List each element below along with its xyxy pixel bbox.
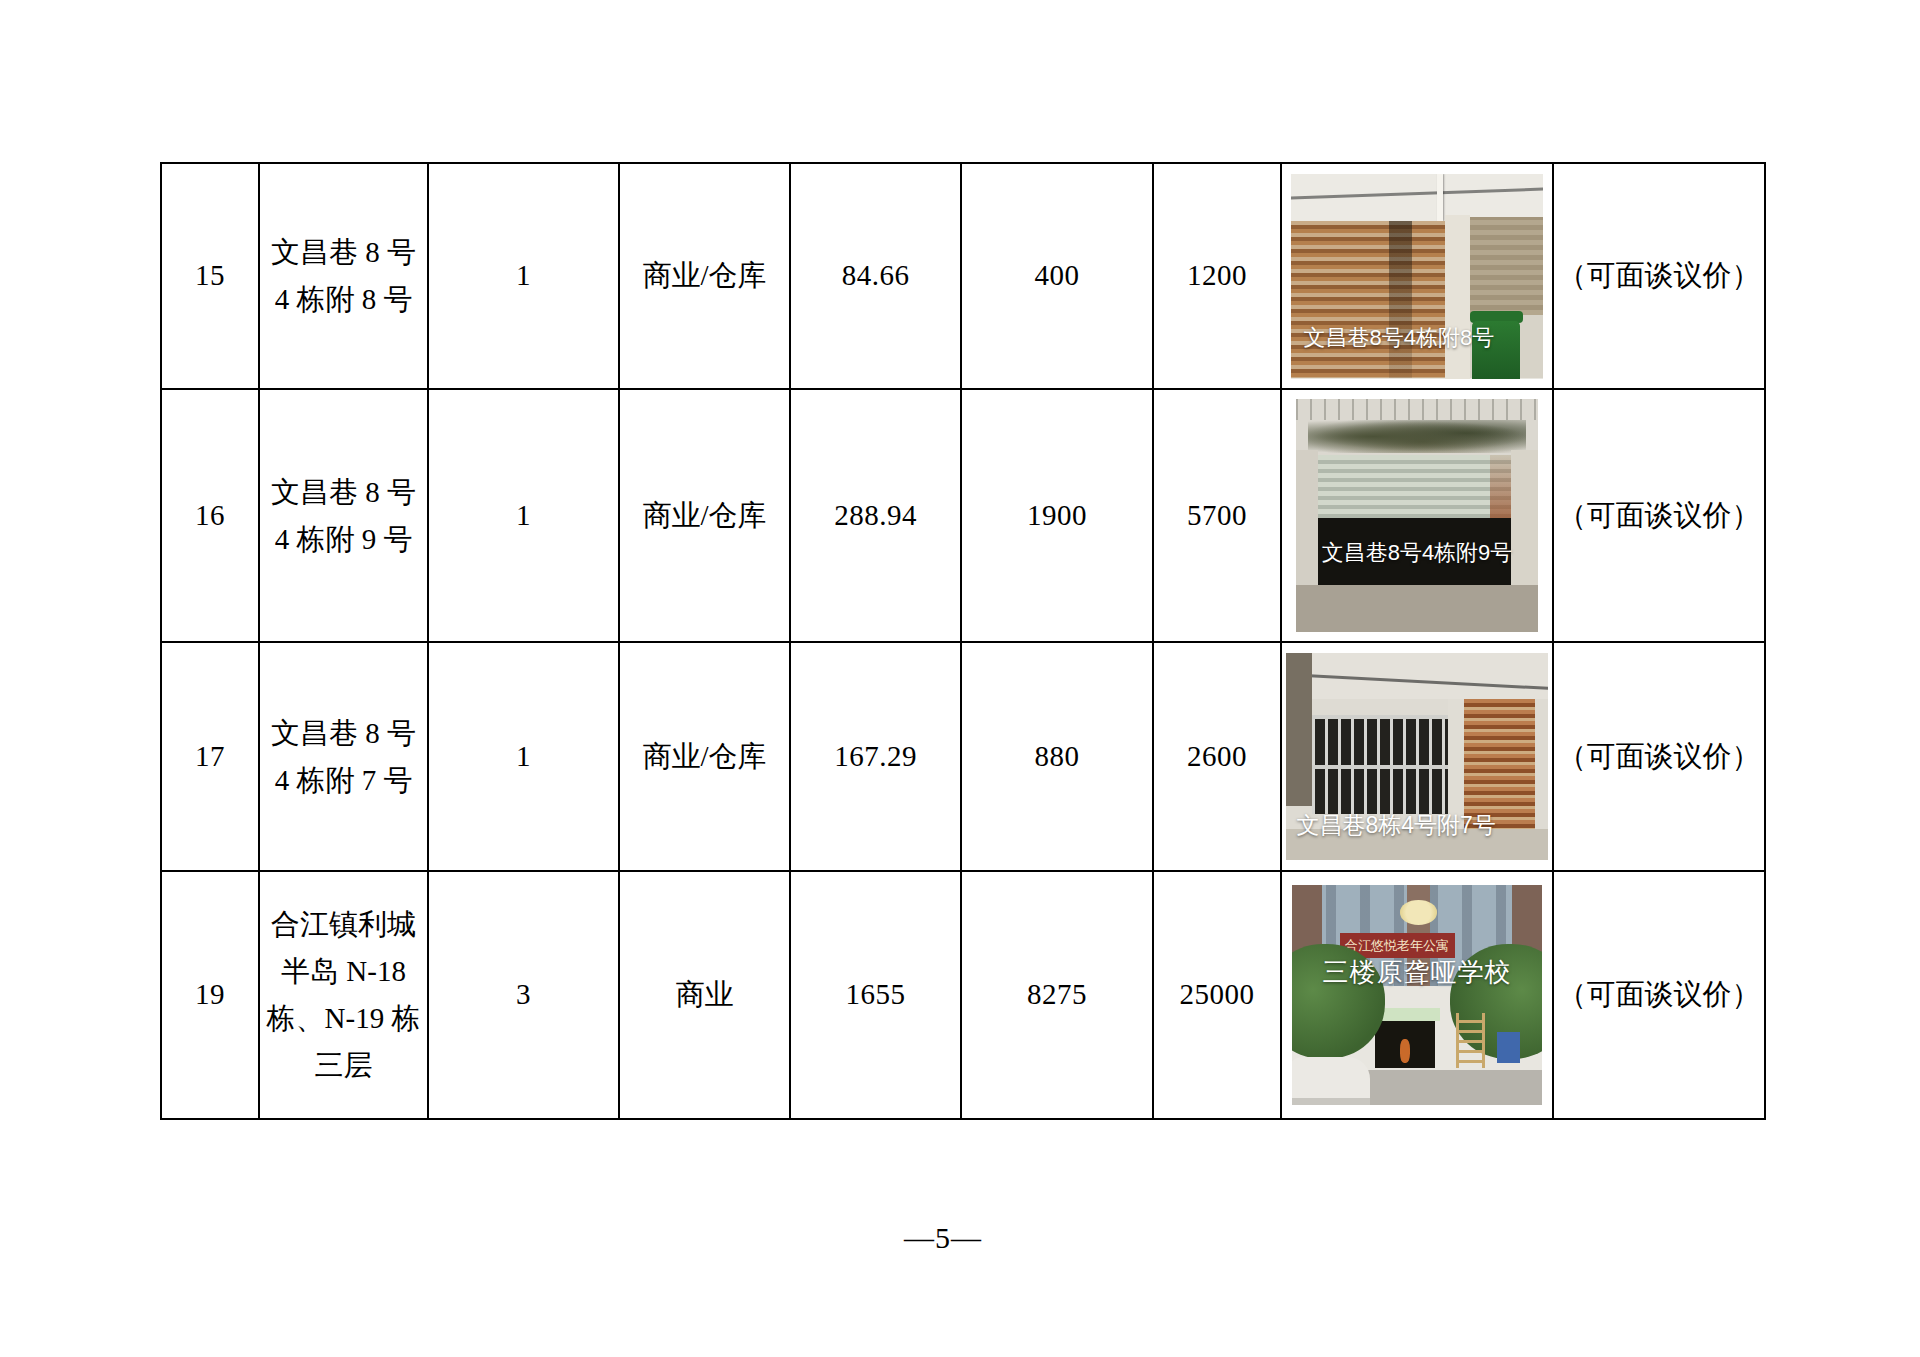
count-cell: 1 — [428, 642, 619, 871]
white-car — [1292, 1057, 1370, 1105]
price-a-cell: 1900 — [961, 389, 1153, 642]
price-b-value: 2600 — [1187, 740, 1247, 772]
area-value: 288.94 — [834, 499, 917, 531]
document-page: 15 文昌巷 8 号 4 栋附 8 号 1 商业/仓库 84.66 400 12… — [0, 0, 1920, 1357]
address-line: 4 栋附 7 号 — [275, 764, 413, 796]
row-number-cell: 19 — [161, 871, 259, 1119]
price-a-cell: 8275 — [961, 871, 1153, 1119]
address: 文昌巷 8 号 4 栋附 7 号 — [260, 710, 427, 804]
mesh-grate — [1296, 399, 1538, 420]
note-cell: （可面谈议价） — [1553, 389, 1765, 642]
concrete-panel — [1470, 217, 1543, 315]
note-text: （可面谈议价） — [1558, 259, 1761, 291]
address-cell: 文昌巷 8 号 4 栋附 9 号 — [259, 389, 428, 642]
address-line: 三层 — [315, 1049, 373, 1081]
row-number-cell: 17 — [161, 642, 259, 871]
address-cell: 文昌巷 8 号 4 栋附 7 号 — [259, 642, 428, 871]
type-cell: 商业 — [619, 871, 790, 1119]
table-row: 15 文昌巷 8 号 4 栋附 8 号 1 商业/仓库 84.66 400 12… — [161, 163, 1765, 389]
right-pillar — [1511, 450, 1538, 594]
pipe — [1437, 174, 1443, 221]
area-value: 167.29 — [834, 740, 917, 772]
photo-cell: 文昌巷8栋4号附7号 — [1281, 642, 1553, 871]
price-b-value: 25000 — [1180, 978, 1255, 1010]
photo-cell: 文昌巷8号4栋附9号 — [1281, 389, 1553, 642]
price-a-cell: 880 — [961, 642, 1153, 871]
type-cell: 商业/仓库 — [619, 163, 790, 389]
area-value: 84.66 — [842, 259, 910, 291]
price-b-cell: 25000 — [1153, 871, 1281, 1119]
note-text: （可面谈议价） — [1558, 499, 1761, 531]
address: 文昌巷 8 号 4 栋附 9 号 — [260, 469, 427, 563]
price-b-cell: 5700 — [1153, 389, 1281, 642]
area-cell: 84.66 — [790, 163, 961, 389]
price-b-cell: 1200 — [1153, 163, 1281, 389]
address-line: 4 栋附 8 号 — [275, 283, 413, 315]
round-sign — [1400, 900, 1438, 924]
property-photo: 合江悠悦老年公寓 三楼原聋哑学校 — [1292, 885, 1542, 1105]
photo-caption: 三楼原聋哑学校 — [1292, 953, 1542, 992]
address-cell: 文昌巷 8 号 4 栋附 8 号 — [259, 163, 428, 389]
blue-sign — [1497, 1032, 1520, 1063]
note-text: （可面谈议价） — [1558, 740, 1761, 772]
ladder — [1456, 1013, 1485, 1068]
property-photo: 文昌巷8栋4号附7号 — [1286, 653, 1548, 860]
table-row: 19 合江镇利城 半岛 N-18 栋、N-19 栋 三层 3 商业 1655 8… — [161, 871, 1765, 1119]
property-photo: 文昌巷8号4栋附9号 — [1296, 399, 1538, 632]
address-line: 合江镇利城 — [271, 908, 416, 940]
ground — [1296, 585, 1538, 632]
photo-cell: 合江悠悦老年公寓 三楼原聋哑学校 — [1281, 871, 1553, 1119]
price-a-value: 8275 — [1027, 978, 1087, 1010]
row-number: 17 — [195, 740, 225, 772]
address-line: 4 栋附 9 号 — [275, 523, 413, 555]
row-number: 16 — [195, 499, 225, 531]
address-line: 栋、N-19 栋 — [267, 1002, 421, 1034]
address: 合江镇利城 半岛 N-18 栋、N-19 栋 三层 — [260, 901, 427, 1089]
address-line: 文昌巷 8 号 — [271, 717, 416, 749]
table-row: 17 文昌巷 8 号 4 栋附 7 号 1 商业/仓库 167.29 880 2… — [161, 642, 1765, 871]
address-line: 文昌巷 8 号 — [271, 476, 416, 508]
page-number: —5— — [904, 1221, 982, 1255]
count-cell: 1 — [428, 163, 619, 389]
type-cell: 商业/仓库 — [619, 389, 790, 642]
note-cell: （可面谈议价） — [1553, 642, 1765, 871]
usage-type: 商业/仓库 — [642, 259, 766, 291]
type-cell: 商业/仓库 — [619, 642, 790, 871]
rusty-roller-shutter — [1291, 221, 1445, 379]
gate-rail — [1312, 765, 1448, 769]
shadowed-wall — [1286, 653, 1312, 806]
note-cell: （可面谈议价） — [1553, 163, 1765, 389]
usage-type: 商业/仓库 — [642, 499, 766, 531]
price-b-value: 5700 — [1187, 499, 1247, 531]
property-photo: 文昌巷8号4栋附8号 — [1291, 174, 1543, 379]
photo-cell: 文昌巷8号4栋附8号 — [1281, 163, 1553, 389]
count-cell: 3 — [428, 871, 619, 1119]
area-cell: 288.94 — [790, 389, 961, 642]
photo-caption: 文昌巷8栋4号附7号 — [1296, 808, 1495, 843]
moss — [1308, 420, 1526, 453]
person — [1400, 1039, 1410, 1063]
count-value: 1 — [516, 259, 531, 291]
price-a-cell: 400 — [961, 163, 1153, 389]
area-cell: 167.29 — [790, 642, 961, 871]
count-cell: 1 — [428, 389, 619, 642]
photo-caption: 文昌巷8号4栋附8号 — [1304, 321, 1495, 354]
address-cell: 合江镇利城 半岛 N-18 栋、N-19 栋 三层 — [259, 871, 428, 1119]
price-b-cell: 2600 — [1153, 642, 1281, 871]
price-a-value: 880 — [1035, 740, 1080, 772]
area-value: 1655 — [846, 978, 906, 1010]
usage-type: 商业/仓库 — [642, 740, 766, 772]
price-b-value: 1200 — [1187, 259, 1247, 291]
row-number: 15 — [195, 259, 225, 291]
note-cell: （可面谈议价） — [1553, 871, 1765, 1119]
price-a-value: 400 — [1035, 259, 1080, 291]
note-text: （可面谈议价） — [1558, 978, 1761, 1010]
usage-type: 商业 — [676, 978, 734, 1010]
rust-streak — [1389, 221, 1412, 379]
photo-caption: 文昌巷8号4栋附9号 — [1296, 536, 1538, 569]
row-number: 19 — [195, 978, 225, 1010]
left-pillar — [1296, 450, 1318, 594]
rust-streak — [1490, 455, 1512, 518]
address: 文昌巷 8 号 4 栋附 8 号 — [260, 229, 427, 323]
address-line: 半岛 N-18 — [281, 955, 406, 987]
listing-table: 15 文昌巷 8 号 4 栋附 8 号 1 商业/仓库 84.66 400 12… — [160, 162, 1766, 1120]
table-row: 16 文昌巷 8 号 4 栋附 9 号 1 商业/仓库 288.94 1900 … — [161, 389, 1765, 642]
area-cell: 1655 — [790, 871, 961, 1119]
row-number-cell: 16 — [161, 389, 259, 642]
count-value: 3 — [516, 978, 531, 1010]
roller-shutter — [1318, 455, 1512, 518]
address-line: 文昌巷 8 号 — [271, 236, 416, 268]
price-a-value: 1900 — [1027, 499, 1087, 531]
count-value: 1 — [516, 499, 531, 531]
row-number-cell: 15 — [161, 163, 259, 389]
count-value: 1 — [516, 740, 531, 772]
